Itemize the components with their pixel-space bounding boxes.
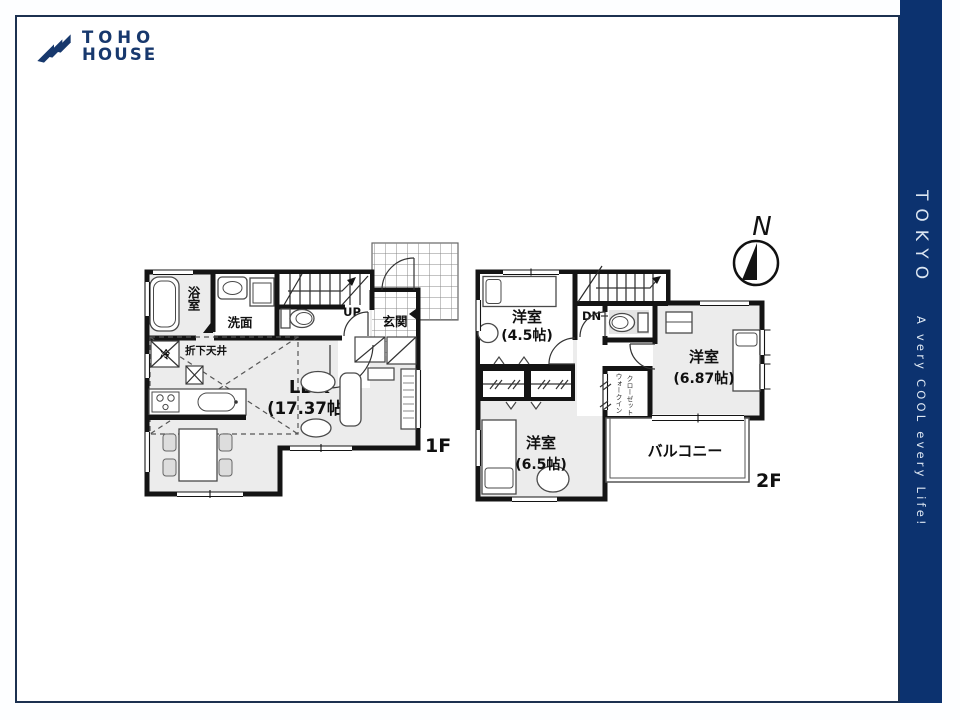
floor-1f-label: 1F: [425, 435, 451, 457]
logo-wordmark: TOHO HOUSE: [82, 29, 157, 63]
vanity-sink-icon: [218, 277, 247, 299]
closet-right-icon: [529, 369, 573, 399]
closet-left-icon: [481, 369, 526, 399]
sidebar-title: TOKYO: [911, 190, 931, 287]
logo-line2: HOUSE: [82, 46, 157, 63]
stairs-up-label: UP: [343, 305, 361, 319]
floor-2f-label: 2F: [756, 470, 780, 492]
washroom-label: 洗面: [227, 315, 253, 330]
2f-hall2-floor: [605, 342, 653, 366]
sidebar-tagline: A very COOL every Life!: [914, 316, 928, 528]
bed-icon-bedroom1: [483, 277, 556, 307]
lowered-ceiling-label: 折下天井: [185, 344, 227, 357]
compass-north-label: N: [752, 212, 771, 242]
toilet-icon: [281, 309, 314, 328]
bath-label: 浴室: [186, 285, 201, 312]
column-box: [186, 366, 203, 384]
floor-plan-1f: UP 浴室 洗面 玄関: [138, 228, 472, 513]
bedroom2-size-label: (6.87帖): [673, 370, 734, 387]
entrance-label: 玄関: [382, 314, 407, 329]
roof-chevrons-icon: [33, 26, 75, 66]
tv-board-icon: [401, 369, 416, 429]
kitchen-counter-icon: [147, 389, 246, 418]
balcony-sliding-door: [652, 414, 744, 423]
coffee-table-icon: [301, 372, 335, 393]
refrigerator-label: 冷: [160, 348, 171, 361]
bathtub-icon: [150, 277, 179, 331]
dresser-icon-bedroom2: [666, 312, 692, 333]
logo-line1: TOHO: [82, 29, 157, 46]
bedroom1-size-label: (4.5帖): [501, 327, 553, 344]
floor-plan-2f: DN 洋室 (4.5帖): [470, 253, 780, 505]
bedroom2-label: 洋室: [689, 348, 719, 366]
bed-icon-bedroom2: [733, 330, 760, 391]
bedroom3-size-label: (6.5帖): [515, 456, 567, 473]
washing-machine-icon: [250, 278, 274, 306]
sofa-icon: [340, 373, 361, 426]
toho-house-logo: TOHO HOUSE: [33, 26, 157, 66]
wic-label-line1: ウォークイン: [614, 373, 622, 414]
wic-label-line2: クローゼット: [625, 375, 633, 416]
bedroom3-label: 洋室: [526, 434, 556, 452]
bed-icon-bedroom3: [482, 420, 516, 494]
right-sidebar: TOKYO A very COOL every Life!: [900, 0, 942, 703]
flyer-canvas: TOHO HOUSE N: [0, 0, 960, 720]
ottoman-icon: [301, 419, 331, 437]
bedroom1-label: 洋室: [512, 308, 542, 326]
ldk-size-label: (17.37帖): [267, 398, 351, 418]
balcony-label: バルコニー: [648, 442, 723, 460]
toilet-2f-icon: [610, 313, 649, 332]
